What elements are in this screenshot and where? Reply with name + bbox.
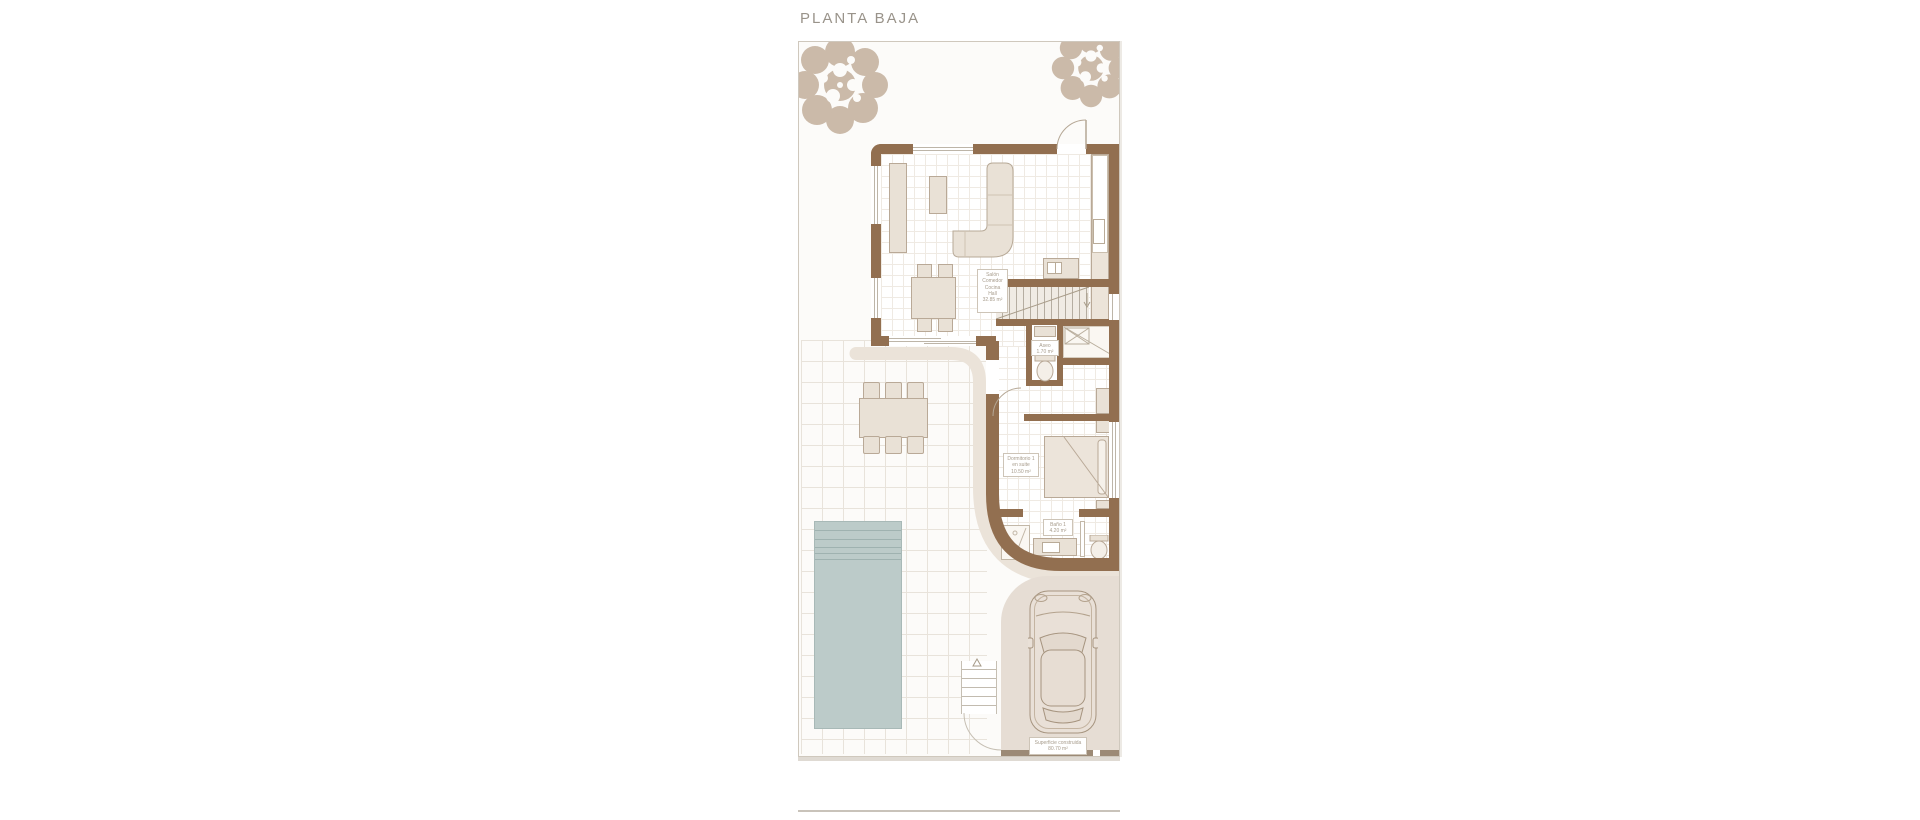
room-label-bano: Baño 1 4.20 m² (1043, 519, 1073, 536)
plan-title: PLANTA BAJA (800, 10, 920, 27)
floor-plan: Salón Comedor Cocina Hall 32.85 m² Aseo … (798, 41, 1120, 757)
room-label-salon: Salón Comedor Cocina Hall 32.85 m² (977, 269, 1008, 313)
bottom-separator-line (798, 810, 1120, 812)
room-label-aseo: Aseo 1.70 m² (1031, 340, 1059, 356)
label-superficie-construida: Superficie construida 80.70 m² (1029, 737, 1087, 755)
door-swings (799, 42, 1120, 757)
room-label-dormitorio: Dormitorio 1 en suite 10.50 m² (1003, 453, 1039, 477)
